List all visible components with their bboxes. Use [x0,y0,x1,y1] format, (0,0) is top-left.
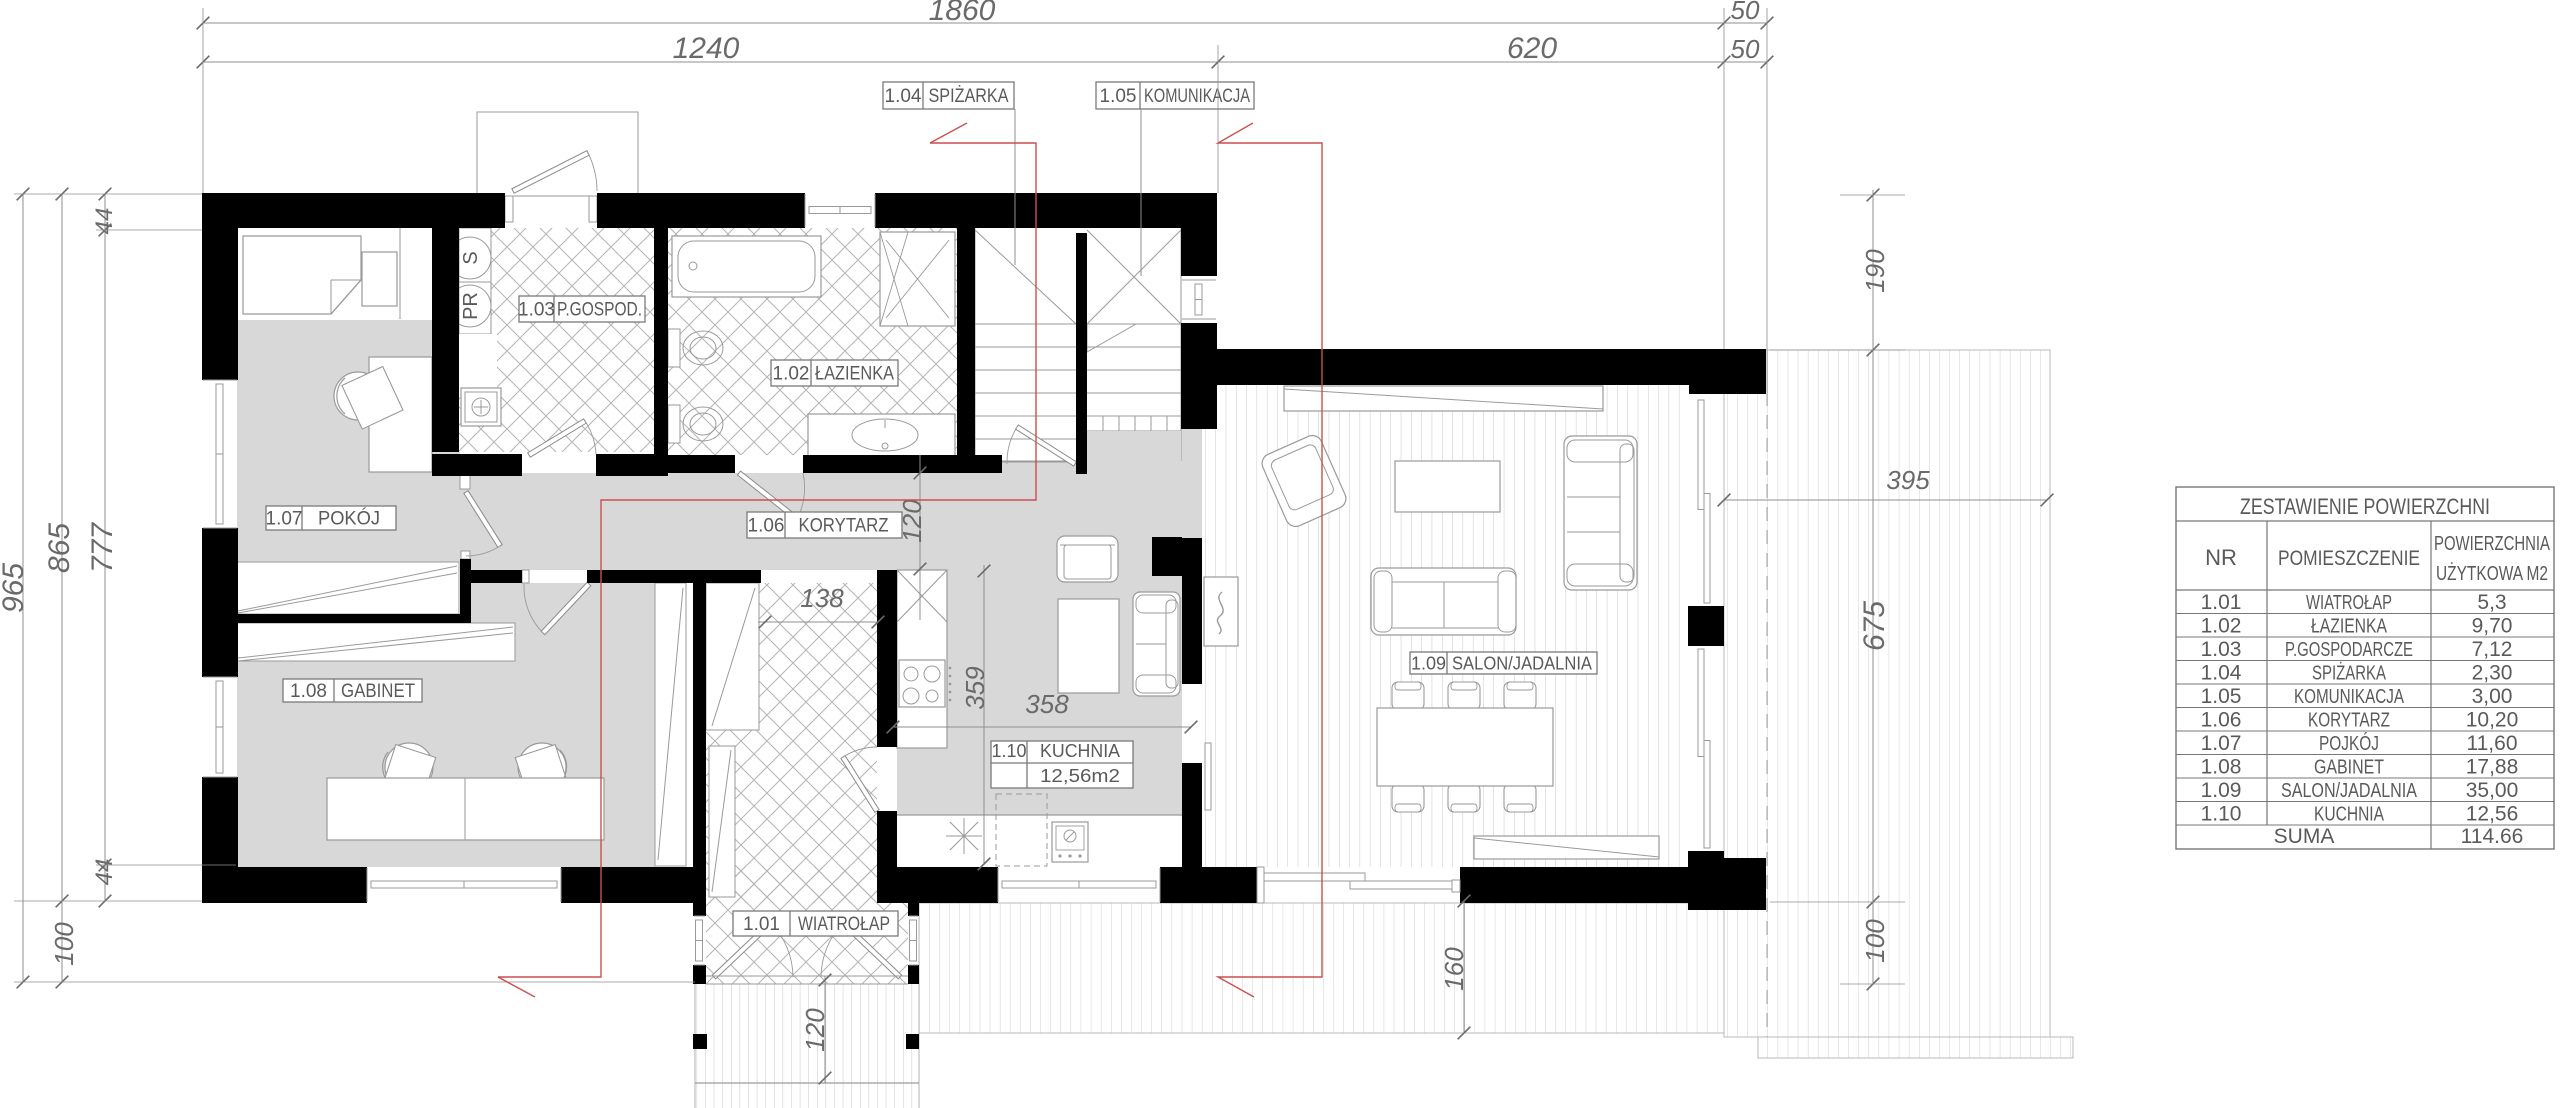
svg-text:1.09: 1.09 [1411,653,1446,673]
svg-text:ŁAZIENKA: ŁAZIENKA [2311,615,2388,637]
svg-text:POKÓJ: POKÓJ [318,508,380,530]
svg-text:P.GOSPOD.: P.GOSPOD. [557,300,642,321]
svg-text:1.08: 1.08 [2201,755,2242,778]
svg-text:11,60: 11,60 [2467,732,2518,755]
svg-text:35,00: 35,00 [2466,779,2519,802]
svg-text:POJKÓJ: POJKÓJ [2319,732,2379,755]
svg-text:12,56: 12,56 [2466,802,2519,825]
svg-text:1240: 1240 [673,32,740,65]
svg-text:359: 359 [960,666,990,709]
svg-text:1.04: 1.04 [885,86,922,107]
svg-text:GABINET: GABINET [2314,756,2384,778]
svg-text:17,88: 17,88 [2466,755,2519,778]
svg-text:10,20: 10,20 [2466,708,2519,731]
svg-text:WIATROŁAP: WIATROŁAP [798,914,890,935]
svg-text:965: 965 [0,563,30,613]
svg-text:777: 777 [86,522,119,573]
svg-text:190: 190 [1860,249,1890,293]
svg-text:358: 358 [1025,689,1069,719]
svg-text:1.06: 1.06 [2201,708,2242,731]
svg-text:SUMA: SUMA [2274,825,2335,848]
svg-text:POWIERZCHNIA: POWIERZCHNIA [2434,533,2550,555]
svg-text:KUCHNIA: KUCHNIA [2314,803,2385,825]
svg-text:GABINET: GABINET [341,681,415,702]
svg-text:SPIŻARKA: SPIŻARKA [929,86,1009,107]
svg-text:138: 138 [800,583,844,613]
svg-text:9,70: 9,70 [2472,614,2513,637]
svg-text:PR: PR [460,292,482,320]
svg-text:50: 50 [1731,34,1760,64]
svg-text:KUCHNIA: KUCHNIA [1040,741,1120,761]
svg-text:P.GOSPODARCZE: P.GOSPODARCZE [2285,639,2413,661]
svg-text:1.01: 1.01 [2201,591,2242,614]
svg-text:1.02: 1.02 [773,364,810,385]
svg-text:160: 160 [1439,947,1469,991]
svg-text:ŁAZIENKA: ŁAZIENKA [815,364,894,385]
svg-text:120: 120 [800,1008,830,1052]
svg-text:1.04: 1.04 [2201,661,2242,684]
svg-text:1.03: 1.03 [518,300,555,321]
svg-text:865: 865 [43,523,76,573]
svg-text:1.05: 1.05 [2201,685,2242,708]
svg-text:KORYTARZ: KORYTARZ [2308,709,2390,731]
svg-text:1.07: 1.07 [266,509,303,530]
svg-text:620: 620 [1507,32,1557,65]
svg-text:7,12: 7,12 [2472,638,2513,661]
svg-text:50: 50 [1731,0,1760,25]
svg-text:675: 675 [1858,601,1891,651]
svg-text:WIATROŁAP: WIATROŁAP [2306,592,2392,614]
svg-text:S: S [460,251,482,264]
svg-text:12,56m2: 12,56m2 [1040,766,1120,786]
svg-text:KOMUNIKACJA: KOMUNIKACJA [2294,686,2404,708]
svg-text:100: 100 [1860,919,1890,963]
svg-text:1.07: 1.07 [2201,732,2242,755]
svg-text:120: 120 [897,499,927,543]
svg-text:1.08: 1.08 [290,681,327,702]
svg-text:1.06: 1.06 [748,516,785,537]
svg-text:114.66: 114.66 [2461,825,2524,848]
svg-text:5,3: 5,3 [2477,591,2506,614]
svg-text:1.10: 1.10 [991,741,1026,761]
svg-text:1860: 1860 [929,0,996,27]
svg-text:3,00: 3,00 [2472,685,2513,708]
svg-text:395: 395 [1886,465,1930,495]
svg-text:44: 44 [91,859,118,886]
svg-text:ZESTAWIENIE POWIERZCHNI: ZESTAWIENIE POWIERZCHNI [2240,494,2490,519]
svg-text:2,30: 2,30 [2472,661,2513,684]
svg-text:1.10: 1.10 [2201,802,2242,825]
svg-text:SPIŻARKA: SPIŻARKA [2312,661,2386,684]
svg-text:SALON/JADALNIA: SALON/JADALNIA [2281,780,2418,802]
svg-text:SALON/JADALNIA: SALON/JADALNIA [1452,653,1592,673]
svg-text:KOMUNIKACJA: KOMUNIKACJA [1144,86,1250,107]
svg-text:NR: NR [2205,545,2237,570]
svg-text:POMIESZCZENIE: POMIESZCZENIE [2278,547,2420,570]
svg-text:1.01: 1.01 [743,914,780,935]
svg-text:UŻYTKOWA M2: UŻYTKOWA M2 [2436,562,2548,585]
svg-text:1.09: 1.09 [2201,779,2242,802]
svg-text:1.03: 1.03 [2201,638,2242,661]
svg-text:KORYTARZ: KORYTARZ [799,516,889,537]
svg-text:1.05: 1.05 [1100,86,1137,107]
svg-text:1.02: 1.02 [2201,614,2242,637]
svg-text:100: 100 [49,922,79,966]
